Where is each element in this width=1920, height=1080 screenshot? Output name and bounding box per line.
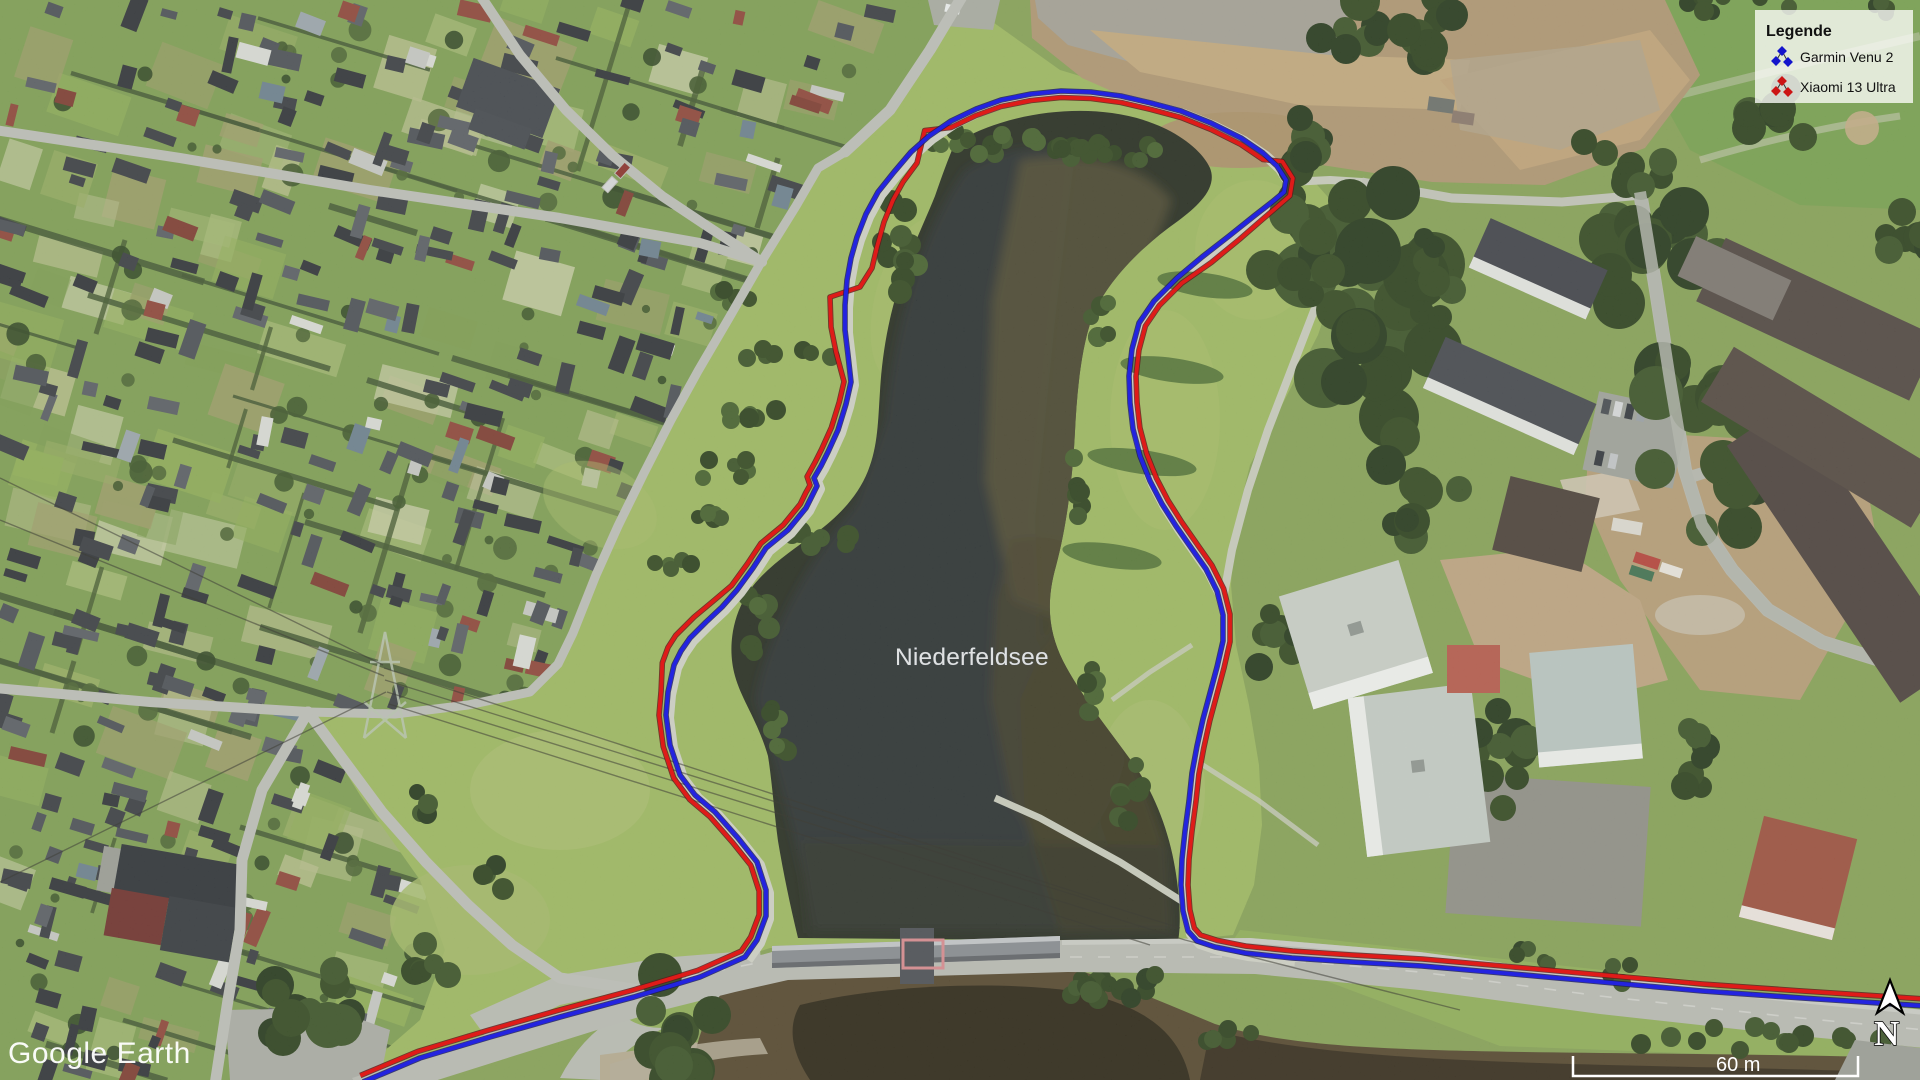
svg-text:N: N: [1874, 1014, 1899, 1053]
svg-text:Xiaomi 13 Ultra: Xiaomi 13 Ultra: [1800, 79, 1896, 95]
svg-text:Garmin Venu 2: Garmin Venu 2: [1800, 49, 1894, 65]
svg-text:Google Earth: Google Earth: [8, 1037, 191, 1070]
svg-text:Legende: Legende: [1766, 23, 1832, 40]
svg-text:60 m: 60 m: [1716, 1054, 1760, 1076]
